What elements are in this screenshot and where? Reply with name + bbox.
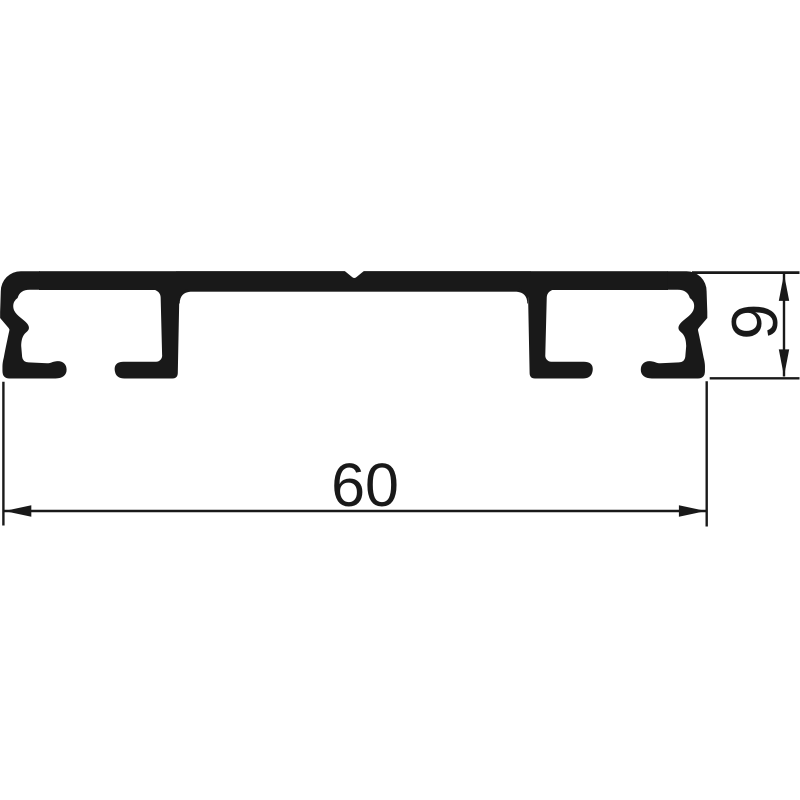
svg-text:9: 9 — [718, 304, 791, 340]
svg-text:60: 60 — [331, 451, 399, 519]
